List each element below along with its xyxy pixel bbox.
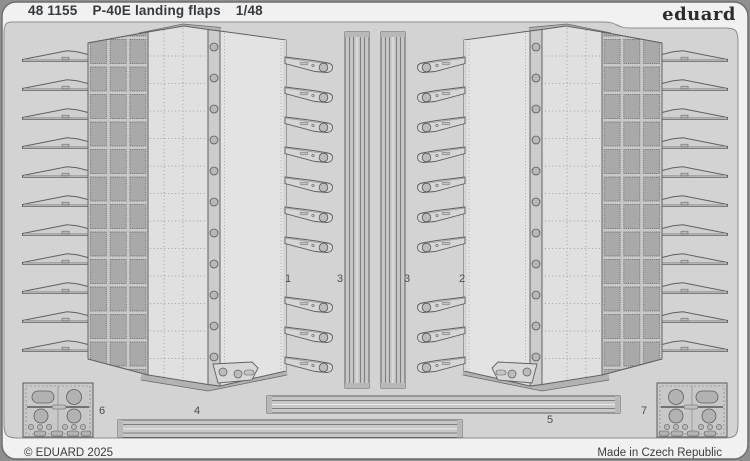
part-label-6: 6	[99, 405, 105, 417]
pe-fret-sheet-image: 48 1155 P-40E landing flaps 1/48 eduard …	[0, 0, 750, 461]
part-label-1: 1	[285, 273, 291, 285]
copyright-text: © EDUARD 2025	[24, 447, 113, 459]
pe-fret-illustration	[0, 0, 750, 461]
sheet-header: 48 1155 P-40E landing flaps 1/48	[28, 3, 263, 18]
catalog-number: 48 1155	[28, 3, 77, 18]
part-label-3-right: 3	[404, 273, 410, 285]
part-label-3-left: 3	[337, 273, 343, 285]
part-label-4: 4	[194, 405, 200, 417]
part-label-2: 2	[459, 273, 465, 285]
part-label-5: 5	[547, 414, 553, 426]
edge-strip-5	[267, 396, 620, 413]
eduard-logo: eduard	[662, 4, 736, 25]
product-title: P-40E landing flaps	[92, 3, 220, 18]
edge-strip-4	[118, 420, 462, 438]
origin-text: Made in Czech Republic	[597, 447, 722, 459]
part-label-7: 7	[641, 405, 647, 417]
scale: 1/48	[236, 3, 263, 18]
